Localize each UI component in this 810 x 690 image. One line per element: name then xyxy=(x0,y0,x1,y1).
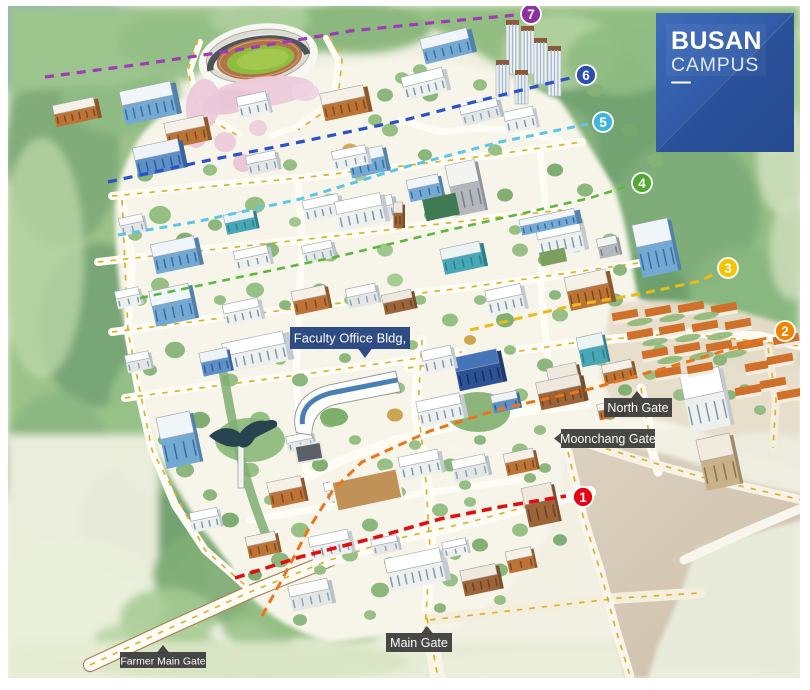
svg-text:Moonchang Gate: Moonchang Gate xyxy=(560,432,656,446)
svg-text:5: 5 xyxy=(599,115,607,130)
svg-text:Faculty Office Bldg,: Faculty Office Bldg, xyxy=(294,330,406,345)
svg-text:North Gate: North Gate xyxy=(607,401,668,415)
svg-text:7: 7 xyxy=(527,7,535,22)
svg-text:Main Gate: Main Gate xyxy=(390,636,448,650)
svg-text:6: 6 xyxy=(582,68,590,83)
svg-text:2: 2 xyxy=(781,324,789,339)
svg-text:BUSAN: BUSAN xyxy=(671,27,762,55)
svg-text:3: 3 xyxy=(724,261,732,276)
svg-text:1: 1 xyxy=(579,490,587,505)
svg-text:4: 4 xyxy=(638,176,646,191)
svg-text:Farmer Main Gate: Farmer Main Gate xyxy=(120,655,205,667)
svg-text:CAMPUS: CAMPUS xyxy=(671,54,759,76)
